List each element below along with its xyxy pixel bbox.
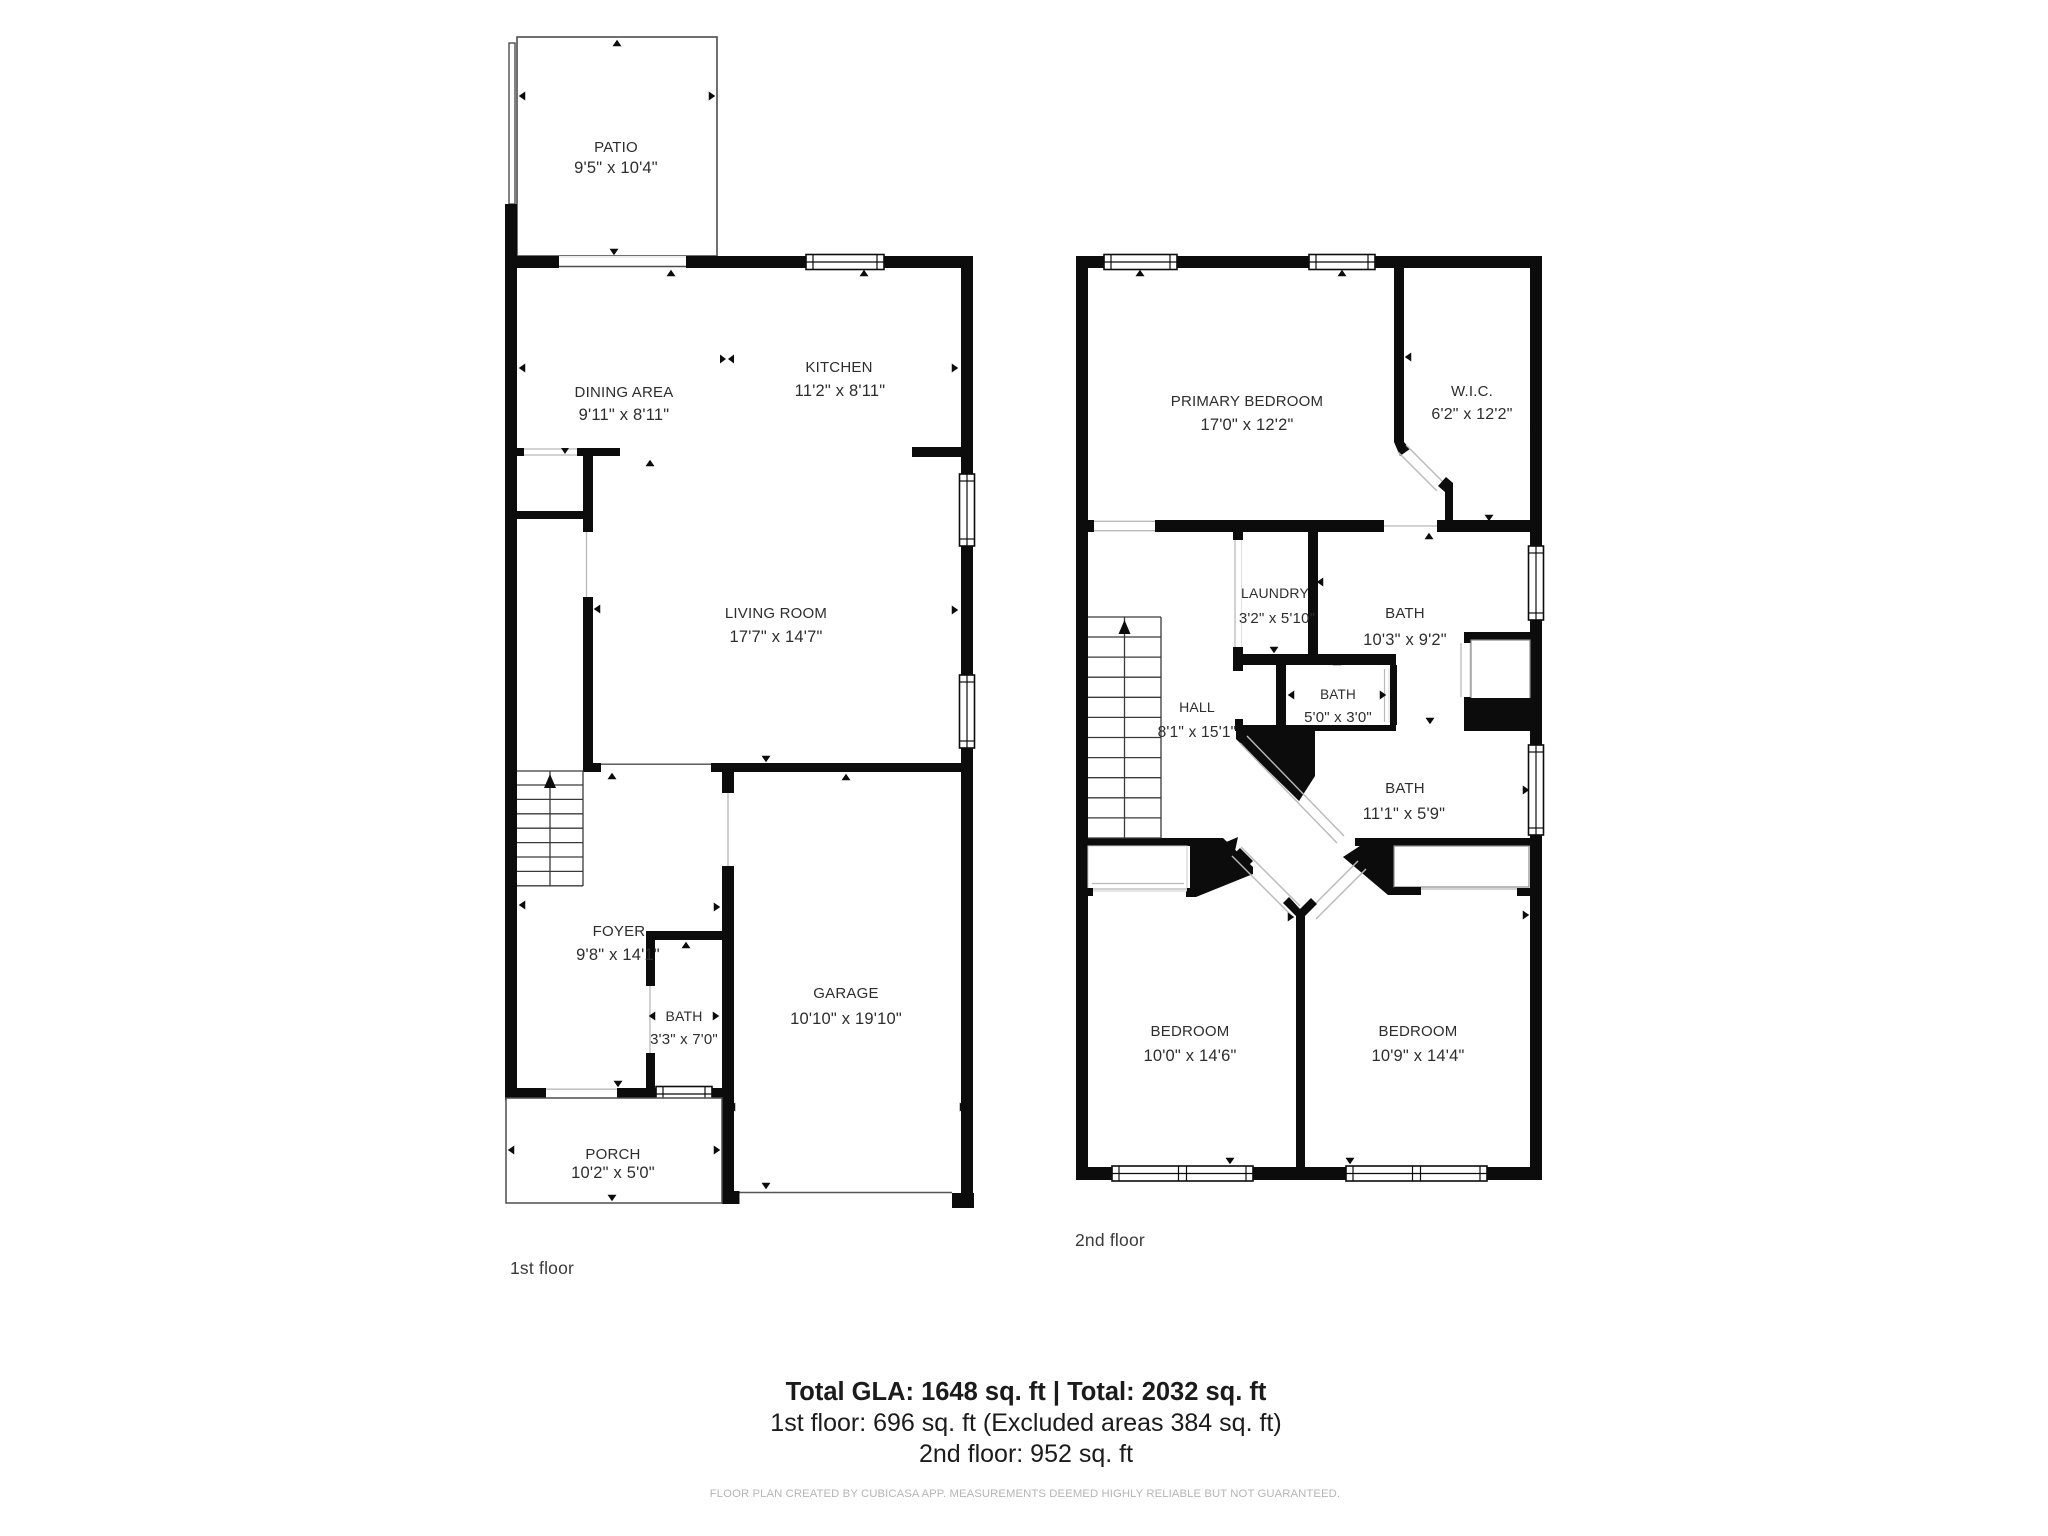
svg-text:1st floor: 1st floor	[510, 1258, 574, 1278]
svg-text:9'8" x 14'1": 9'8" x 14'1"	[576, 946, 660, 964]
svg-text:3'3" x 7'0": 3'3" x 7'0"	[650, 1031, 718, 1048]
svg-text:11'2" x 8'11": 11'2" x 8'11"	[795, 382, 886, 400]
svg-text:9'5" x 10'4": 9'5" x 10'4"	[574, 159, 658, 177]
svg-text:LAUNDRY: LAUNDRY	[1241, 585, 1310, 601]
svg-text:10'0" x 14'6": 10'0" x 14'6"	[1143, 1047, 1236, 1065]
svg-text:1st floor: 696 sq. ft (Exclude: 1st floor: 696 sq. ft (Excluded areas 38…	[770, 1409, 1281, 1437]
svg-text:LIVING ROOM: LIVING ROOM	[725, 605, 827, 622]
svg-text:8'1" x 15'1": 8'1" x 15'1"	[1158, 724, 1237, 741]
svg-text:FOYER: FOYER	[593, 923, 646, 940]
svg-text:DINING AREA: DINING AREA	[575, 384, 674, 401]
svg-text:PRIMARY BEDROOM: PRIMARY BEDROOM	[1171, 393, 1323, 410]
svg-text:BATH: BATH	[1385, 780, 1425, 797]
svg-text:5'0" x 3'0": 5'0" x 3'0"	[1304, 709, 1372, 726]
svg-text:FLOOR PLAN CREATED BY CUBICASA: FLOOR PLAN CREATED BY CUBICASA APP. MEAS…	[710, 1488, 1340, 1500]
svg-text:PATIO: PATIO	[594, 139, 638, 156]
svg-text:BATH: BATH	[1385, 605, 1425, 622]
svg-text:11'1" x 5'9": 11'1" x 5'9"	[1363, 805, 1446, 823]
svg-text:6'2" x 12'2": 6'2" x 12'2"	[1431, 406, 1512, 423]
svg-text:3'2" x 5'10": 3'2" x 5'10"	[1239, 610, 1315, 627]
svg-text:10'2" x 5'0": 10'2" x 5'0"	[571, 1164, 655, 1182]
svg-text:PORCH: PORCH	[585, 1146, 640, 1163]
svg-text:10'10" x 19'10": 10'10" x 19'10"	[790, 1010, 902, 1028]
svg-text:GARAGE: GARAGE	[813, 985, 878, 1002]
svg-text:17'0" x 12'2": 17'0" x 12'2"	[1200, 416, 1293, 434]
svg-text:BEDROOM: BEDROOM	[1151, 1023, 1230, 1040]
svg-text:2nd floor: 952 sq. ft: 2nd floor: 952 sq. ft	[919, 1440, 1133, 1468]
svg-text:W.I.C.: W.I.C.	[1451, 383, 1493, 400]
svg-text:9'11" x 8'11": 9'11" x 8'11"	[579, 406, 670, 424]
svg-text:10'9" x 14'4": 10'9" x 14'4"	[1371, 1047, 1464, 1065]
svg-text:Total GLA: 1648 sq. ft | Total: Total GLA: 1648 sq. ft | Total: 2032 sq.…	[786, 1378, 1267, 1406]
svg-text:KITCHEN: KITCHEN	[805, 359, 872, 376]
svg-text:HALL: HALL	[1179, 699, 1215, 715]
svg-text:BATH: BATH	[1320, 687, 1356, 702]
svg-text:BATH: BATH	[665, 1008, 702, 1024]
svg-text:2nd floor: 2nd floor	[1075, 1230, 1145, 1250]
svg-text:10'3" x 9'2": 10'3" x 9'2"	[1363, 631, 1447, 649]
svg-text:BEDROOM: BEDROOM	[1379, 1023, 1458, 1040]
svg-text:17'7" x 14'7": 17'7" x 14'7"	[729, 628, 822, 646]
